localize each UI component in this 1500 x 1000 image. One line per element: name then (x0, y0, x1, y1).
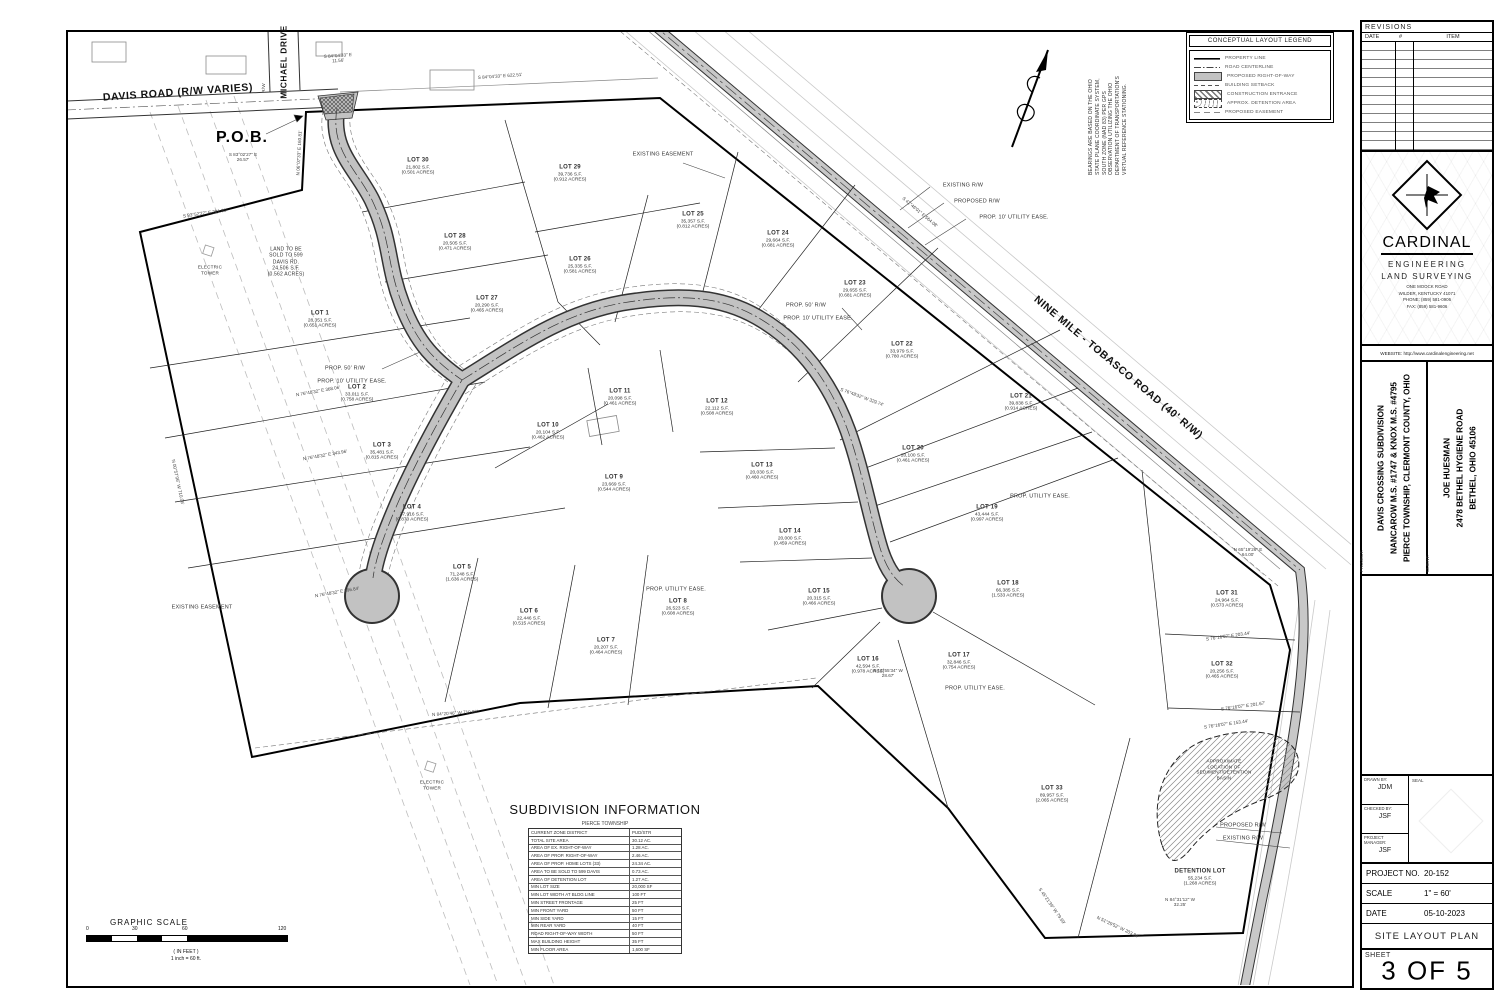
scale-value: 1" = 60' (1424, 889, 1451, 898)
table-row-value: 1,600 SF (630, 947, 650, 952)
lot-number: LOT 15 (803, 588, 836, 596)
table-row-value: 1.27 AC. (630, 877, 649, 882)
firm-line1: ENGINEERING (1362, 260, 1492, 269)
lot-acreage: (0.780 ACRES) (886, 355, 919, 361)
project-number-value: 20-152 (1424, 869, 1449, 878)
lot-number: LOT 21 (1005, 393, 1038, 401)
firm-address-line: ONE MOOCK ROAD (1362, 284, 1492, 291)
lot-acreage: (0.471 ACRES) (439, 247, 472, 253)
lot-label: LOT 5 71,248 S.F. (1.636 ACRES) (446, 564, 479, 583)
table-row-value: 30.12 AC. (630, 838, 651, 843)
scale-tick: 60 (182, 926, 188, 932)
legend-item: ROAD CENTERLINE (1194, 63, 1326, 72)
lot-number: LOT 8 (662, 598, 695, 606)
map-annotation: LAND TO BE SOLD TO 599 DAVIS RD. 24,506 … (268, 246, 305, 277)
table-row: MIN SIDE YARD 15 FT (529, 915, 681, 923)
credits-column: DRAWN BY: JDM CHECKED BY: JSF PROJECT MA… (1362, 776, 1409, 862)
revisions-block: REVISIONS DATE # ITEM (1362, 22, 1492, 152)
table-row-label: ROAD RIGHT-OF-WAY WIDTH (529, 930, 630, 937)
project-label: PROJECT: (1359, 550, 1364, 572)
lot-number: LOT 4 (396, 504, 429, 512)
map-annotation: EXISTING R/W (1223, 836, 1263, 843)
lot-label: LOT 28 20,505 S.F. (0.471 ACRES) (439, 233, 472, 252)
map-annotation: EXISTING R/W (943, 183, 983, 190)
scale-label: SCALE (1362, 889, 1424, 898)
lot-acreage: (1.636 ACRES) (446, 578, 479, 584)
township-header: PIERCE TOWNSHIP (505, 821, 705, 827)
lot-number: LOT 23 (839, 280, 872, 288)
table-row: MIN FLOOR AREA 1,600 SF (529, 946, 681, 953)
electric-corridor-lines (150, 96, 554, 985)
lot-number: LOT 18 (992, 580, 1025, 588)
lot-label: LOT 26 25,335 S.F. (0.581 ACRES) (564, 256, 597, 275)
lot-acreage: (0.997 ACRES) (971, 518, 1004, 524)
firm-address-line: WILDER, KENTUCKY 41071 (1362, 291, 1492, 298)
lot-label: LOT 22 33,979 S.F. (0.780 ACRES) (886, 341, 919, 360)
project-number-label: PROJECT NO. (1362, 869, 1424, 878)
lot-label: LOT 12 22,112 S.F. (0.508 ACRES) (701, 398, 734, 417)
lot-acreage: (0.464 ACRES) (590, 651, 623, 657)
lot-acreage: (0.465 ACRES) (1206, 675, 1239, 681)
subdivision-info-table: CURRENT ZONE DISTRICT PUD/STR TOTAL SITE… (528, 828, 682, 954)
sheet-number: 3 OF 5 (1381, 955, 1472, 986)
table-row-value: 25 FT (630, 900, 643, 905)
map-annotation: PROP. UTILITY EASE. (1010, 494, 1070, 501)
table-row-label: MIN REAR YARD (529, 923, 630, 930)
legend-swatch (1194, 64, 1220, 72)
lot-acreage: (0.758 ACRES) (341, 398, 374, 404)
bearing-label: S 84°04'33" E 11.56' (324, 52, 353, 64)
map-annotation: PROP. 50' R/W (786, 303, 826, 310)
lot-acreage: (0.460 ACRES) (746, 476, 779, 482)
drawn-by-value: JDM (1364, 784, 1406, 791)
project-location: PIERCE TOWNSHIP, CLERMONT COUNTY, OHIO (1401, 365, 1414, 571)
table-row: MIN LOT WIDTH AT BLDG LINE 100 FT (529, 891, 681, 899)
lot-label: LOT 6 22,446 S.F. (0.515 ACRES) (513, 608, 546, 627)
date-row: DATE 05-10-2023 (1362, 904, 1492, 924)
table-row-label: MIN FLOOR AREA (529, 946, 630, 953)
checked-by-cell: CHECKED BY: JSF (1362, 805, 1408, 834)
scale-bar (86, 935, 288, 942)
legend-item: APPROX. DETENTION AREA (1194, 99, 1326, 108)
lot-label: LOT 7 20,207 S.F. (0.464 ACRES) (590, 637, 623, 656)
bearing-label: N 84°31'12" W 32.25' (1165, 897, 1195, 907)
plan-sheet: LOT 1 28,351 S.F. (0.651 ACRES) LOT 2 33… (0, 0, 1500, 1000)
lot-number: LOT 20 (897, 445, 930, 453)
legend-swatch (1194, 72, 1222, 81)
table-row: CURRENT ZONE DISTRICT PUD/STR (529, 829, 681, 837)
revisions-item-col: ITEM (1417, 34, 1489, 40)
map-annotation: PROP. 10' UTILITY EASE. (317, 379, 386, 386)
lot-number: LOT 9 (598, 474, 631, 482)
project-manager-label: PROJECT MANAGER: (1364, 835, 1406, 845)
table-row-label: MIN SIDE YARD (529, 915, 630, 922)
map-annotation: ELECTRIC TOWER (420, 779, 444, 790)
lot-label: LOT 10 20,104 S.F. (0.462 ACRES) (532, 422, 565, 441)
table-row: MIN STREET FRONTAGE 25 FT (529, 899, 681, 907)
firm-block: CARDINAL ENGINEERING LAND SURVEYING ONE … (1362, 152, 1492, 346)
table-row-value: 1.28 AC. (630, 845, 649, 850)
table-row-value: 50 FT (630, 931, 643, 936)
date-label: DATE (1362, 909, 1424, 918)
map-annotation: ELECTRIC TOWER (198, 264, 222, 275)
lot-label: LOT 24 29,664 S.F. (0.681 ACRES) (762, 230, 795, 249)
table-row-value: 0.73 AC. (630, 869, 649, 874)
lot-number: DETENTION LOT (1175, 868, 1226, 876)
lot-number: LOT 14 (774, 528, 807, 536)
lot-label: LOT 29 39,736 S.F. (0.912 ACRES) (554, 164, 587, 183)
legend-item-label: PROPERTY LINE (1225, 56, 1266, 61)
lot-label: LOT 20 20,100 S.F. (0.461 ACRES) (897, 445, 930, 464)
lot-acreage: (0.459 ACRES) (774, 542, 807, 548)
table-row: AREA OF DETENTION LOT 1.27 AC. (529, 876, 681, 884)
lot-label: LOT 13 20,030 S.F. (0.460 ACRES) (746, 462, 779, 481)
lot-label: LOT 18 66,385 S.F. (1.533 ACRES) (992, 580, 1025, 599)
table-row-label: MIN LOT SIZE (529, 884, 630, 891)
lot-number: LOT 25 (677, 211, 710, 219)
lot-acreage: (0.508 ACRES) (701, 412, 734, 418)
legend: CONCEPTUAL LAYOUT LEGEND PROPERTY LINE R… (1186, 32, 1334, 123)
drawn-by-label: DRAWN BY: (1364, 777, 1406, 782)
lot-acreage: (0.515 ACRES) (513, 622, 546, 628)
lot-number: LOT 24 (762, 230, 795, 238)
legend-item-label: CONSTRUCTION ENTRANCE (1227, 92, 1298, 97)
lot-number: LOT 16 (852, 656, 885, 664)
lot-label: LOT 15 20,315 S.F. (0.466 ACRES) (803, 588, 836, 607)
lot-number: LOT 33 (1036, 785, 1069, 793)
lot-acreage: (0.681 ACRES) (839, 294, 872, 300)
drawn-by-cell: DRAWN BY: JDM (1362, 776, 1408, 805)
lot-number: LOT 5 (446, 564, 479, 572)
title-block: REVISIONS DATE # ITEM CARDINAL ENGINEERI… (1360, 20, 1494, 990)
lot-number: LOT 7 (590, 637, 623, 645)
legend-swatch (1194, 90, 1222, 99)
lot-acreage: (0.681 ACRES) (762, 244, 795, 250)
lot-acreage: (0.461 ACRES) (897, 459, 930, 465)
lot-label: LOT 2 33,011 S.F. (0.758 ACRES) (341, 384, 374, 403)
lot-number: LOT 10 (532, 422, 565, 430)
revisions-header: DATE # ITEM (1362, 33, 1492, 42)
table-row-label: CURRENT ZONE DISTRICT (529, 829, 630, 836)
table-row-label: AREA OF EX. RIGHT-OF-WAY (529, 845, 630, 852)
scale-tick: 0 (86, 926, 89, 932)
table-row-label: TOTAL SITE AREA (529, 837, 630, 844)
client-address: 2478 BETHEL HYGIENE ROAD (1453, 365, 1466, 571)
table-row: MIN FRONT YARD 50 FT (529, 907, 681, 915)
lot-number: LOT 17 (943, 652, 976, 660)
lot-acreage: (0.573 ACRES) (1211, 604, 1244, 610)
lot-acreage: (0.501 ACRES) (402, 171, 435, 177)
bearing-label: S 83°02'27" E 26.57' (229, 152, 257, 162)
lot-label: DETENTION LOT 55,234 S.F. (1.268 ACRES) (1175, 868, 1226, 887)
client-label: CLIENT: (1425, 555, 1430, 572)
lot-label: LOT 4 37,916 S.F. (0.870 ACRES) (396, 504, 429, 523)
map-annotation: PROP. 10' UTILITY EASE. (783, 316, 852, 323)
lot-label: LOT 11 20,098 S.F. (0.461 ACRES) (604, 388, 637, 407)
table-row-value: 15 FT (630, 916, 643, 921)
revisions-number-col: # (1399, 34, 1417, 40)
scale-ticks: 0 30 60 120 (86, 942, 286, 949)
lot-number: LOT 6 (513, 608, 546, 616)
table-row-label: AREA OF DETENTION LOT (529, 876, 630, 883)
table-row-value: 2.46 AC. (630, 853, 649, 858)
client-cell: CLIENT: JOE HUESMAN 2478 BETHEL HYGIENE … (1428, 362, 1492, 574)
lot-acreage: (1.268 ACRES) (1175, 882, 1226, 888)
project-number-row: PROJECT NO. 20-152 (1362, 864, 1492, 884)
lot-number: LOT 27 (471, 295, 504, 303)
map-annotation: PROPOSED R/W (1220, 823, 1266, 830)
lot-label: LOT 14 20,000 S.F. (0.459 ACRES) (774, 528, 807, 547)
lot-acreage: (0.754 ACRES) (943, 666, 976, 672)
map-annotation: PROP. UTILITY EASE. (646, 587, 706, 594)
firm-name: CARDINAL (1381, 234, 1474, 255)
subdivision-information: SUBDIVISION INFORMATION PIERCE TOWNSHIP … (505, 802, 705, 954)
table-row-value: PUD/STR (630, 830, 651, 835)
table-row-label: AREA TO BE SOLD TO 599 DAVIS (529, 868, 630, 875)
lot-acreage: (0.815 ACRES) (366, 456, 399, 462)
lot-acreage: (0.912 ACRES) (554, 178, 587, 184)
legend-item-label: PROPOSED RIGHT-OF-WAY (1227, 74, 1295, 79)
lot-label: LOT 33 89,957 S.F. (2.065 ACRES) (1036, 785, 1069, 804)
lot-number: LOT 32 (1206, 661, 1239, 669)
lot-number: LOT 3 (366, 442, 399, 450)
bearing-label: N 65°19'26" E 64.00' (1234, 547, 1263, 557)
revisions-date-col: DATE (1365, 34, 1399, 40)
legend-item: PROPERTY LINE (1194, 54, 1326, 63)
project-name: DAVIS CROSSING SUBDIVISION (1374, 365, 1387, 571)
legend-item: BUILDING SETBACK (1194, 81, 1326, 90)
lot-acreage: (0.812 ACRES) (677, 225, 710, 231)
revisions-empty-rows (1362, 42, 1492, 150)
seal-label: SEAL (1412, 778, 1424, 783)
legend-item-label: ROAD CENTERLINE (1225, 65, 1274, 70)
project-surveys: NANCAROW M.S. #1747 & KNOX M.S. #4795 (1387, 365, 1400, 571)
legend-item-label: APPROX. DETENTION AREA (1227, 101, 1296, 106)
lot-number: LOT 19 (971, 504, 1004, 512)
table-row-value: 35 FT (630, 939, 643, 944)
checked-by-value: JSF (1364, 813, 1406, 820)
legend-item-label: PROPOSED EASEMENT (1225, 110, 1283, 115)
map-annotation: PROP. 50' R/W (325, 366, 365, 373)
lot-label: LOT 8 26,523 S.F. (0.608 ACRES) (662, 598, 695, 617)
lot-number: LOT 26 (564, 256, 597, 264)
lot-number: LOT 1 (304, 310, 337, 318)
lot-label: LOT 1 28,351 S.F. (0.651 ACRES) (304, 310, 337, 329)
map-annotation: APPROXIMATE LOCATION OF SEDIMENT/DETENTI… (1196, 759, 1251, 782)
map-annotation: MICHAEL DRIVE (279, 25, 290, 98)
coordinate-system-note: BEARINGS ARE BASED ON THE OHIO STATE PLA… (1088, 25, 1129, 175)
map-annotation: EXISTING EASEMENT (633, 152, 694, 159)
lot-label: LOT 30 21,802 S.F. (0.501 ACRES) (402, 157, 435, 176)
scale-unit: ( IN FEET ) (86, 949, 286, 956)
checked-by-label: CHECKED BY: (1364, 806, 1406, 811)
legend-title: CONCEPTUAL LAYOUT LEGEND (1189, 35, 1331, 47)
lot-label: LOT 31 24,964 S.F. (0.573 ACRES) (1211, 590, 1244, 609)
map-annotation: PROP. 10' UTILITY EASE. (979, 215, 1048, 222)
lot-acreage: (0.544 ACRES) (598, 488, 631, 494)
client-city: BETHEL, OHIO 45106 (1467, 365, 1480, 571)
scale-row: SCALE 1" = 60' (1362, 884, 1492, 904)
seal-box: SEAL (1409, 776, 1492, 862)
notes-empty-box (1362, 576, 1492, 776)
graphic-scale: GRAPHIC SCALE 0 30 60 120 ( IN FEET ) 1 … (86, 918, 306, 963)
legend-item-label: BUILDING SETBACK (1225, 83, 1275, 88)
table-row: MIN LOT SIZE 20,000 SF (529, 884, 681, 892)
table-row: TOTAL SITE AREA 30.12 AC. (529, 837, 681, 845)
property-boundary (140, 98, 1290, 938)
legend-swatch (1194, 55, 1220, 63)
lot-acreage: (1.533 ACRES) (992, 594, 1025, 600)
lot-number: LOT 12 (701, 398, 734, 406)
site-plan-map (0, 0, 1500, 1000)
lot-acreage: (0.461 ACRES) (604, 402, 637, 408)
firm-line2: LAND SURVEYING (1362, 272, 1492, 281)
lot-label: LOT 25 35,357 S.F. (0.812 ACRES) (677, 211, 710, 230)
seal-watermark (1418, 788, 1483, 853)
lot-label: LOT 3 35,481 S.F. (0.815 ACRES) (366, 442, 399, 461)
lot-label: LOT 23 29,655 S.F. (0.681 ACRES) (839, 280, 872, 299)
lot-acreage: (0.870 ACRES) (396, 518, 429, 524)
lot-number: LOT 22 (886, 341, 919, 349)
firm-website: WEBSITE: http://www.cardinalengineering.… (1362, 346, 1492, 362)
lot-acreage: (0.608 ACRES) (662, 612, 695, 618)
map-annotation: PROPOSED R/W (954, 199, 1000, 206)
table-row-label: MIN STREET FRONTAGE (529, 899, 630, 906)
lot-label: LOT 19 43,444 S.F. (0.997 ACRES) (971, 504, 1004, 523)
lot-number: LOT 31 (1211, 590, 1244, 598)
lot-number: LOT 13 (746, 462, 779, 470)
table-row: MIN REAR YARD 40 FT (529, 923, 681, 931)
table-row: MAX BUILDING HEIGHT 35 FT (529, 938, 681, 946)
lot-number: LOT 29 (554, 164, 587, 172)
date-value: 05-10-2023 (1424, 909, 1465, 918)
table-row-value: 40 FT (630, 923, 643, 928)
lot-label: LOT 17 32,846 S.F. (0.754 ACRES) (943, 652, 976, 671)
lot-number: LOT 11 (604, 388, 637, 396)
project-manager-cell: PROJECT MANAGER: JSF (1362, 834, 1408, 862)
table-row-label: MIN LOT WIDTH AT BLDG LINE (529, 891, 630, 898)
lot-acreage: (0.651 ACRES) (304, 324, 337, 330)
lot-lines (150, 120, 1300, 938)
table-row: ROAD RIGHT-OF-WAY WIDTH 50 FT (529, 930, 681, 938)
bearing-label: S 12°55'34" W 28.67' (873, 668, 903, 678)
scale-tick: 120 (278, 926, 286, 932)
lot-number: LOT 30 (402, 157, 435, 165)
cardinal-logo-icon (1392, 160, 1463, 231)
project-manager-value: JSF (1364, 847, 1406, 854)
lot-acreage: (0.466 ACRES) (803, 602, 836, 608)
revisions-title: REVISIONS (1362, 22, 1492, 33)
table-row: AREA OF PROP. HOME LOTS (33) 24.34 AC. (529, 860, 681, 868)
table-row-label: MIN FRONT YARD (529, 907, 630, 914)
table-row: AREA OF EX. RIGHT-OF-WAY 1.28 AC. (529, 845, 681, 853)
lot-label: LOT 21 39,838 S.F. (0.914 ACRES) (1005, 393, 1038, 412)
legend-item: PROPOSED RIGHT-OF-WAY (1194, 72, 1326, 81)
map-annotation: P.O.B. (216, 128, 268, 148)
project-text: DAVIS CROSSING SUBDIVISION NANCAROW M.S.… (1374, 365, 1413, 571)
table-row-label: AREA OF PROP. RIGHT-OF-WAY (529, 852, 630, 859)
table-row-label: MAX BUILDING HEIGHT (529, 938, 630, 945)
table-row-value: 50 FT (630, 908, 643, 913)
map-annotation: R/W (261, 83, 267, 93)
firm-address: ONE MOOCK ROAD WILDER, KENTUCKY 41071 PH… (1362, 284, 1492, 310)
legend-swatch (1194, 82, 1220, 90)
subdivision-info-title: SUBDIVISION INFORMATION (505, 802, 705, 817)
legend-swatch (1194, 109, 1220, 117)
client-name: JOE HUESMAN (1440, 365, 1453, 571)
legend-swatch (1194, 99, 1222, 108)
map-annotation: EXISTING EASEMENT (172, 605, 233, 612)
lot-number: LOT 28 (439, 233, 472, 241)
table-row-value: 100 FT (630, 892, 646, 897)
firm-phone: PHONE: (859) 581-0906 (1362, 297, 1492, 304)
lot-acreage: (2.065 ACRES) (1036, 799, 1069, 805)
legend-item: CONSTRUCTION ENTRANCE (1194, 90, 1326, 99)
lot-label: LOT 32 20,256 S.F. (0.465 ACRES) (1206, 661, 1239, 680)
table-row-value: 24.34 AC. (630, 861, 651, 866)
lot-acreage: (0.465 ACRES) (471, 309, 504, 315)
table-row: AREA TO BE SOLD TO 599 DAVIS 0.73 AC. (529, 868, 681, 876)
scale-tick: 30 (132, 926, 138, 932)
table-row-label: AREA OF PROP. HOME LOTS (33) (529, 860, 630, 867)
graphic-scale-title: GRAPHIC SCALE (110, 918, 306, 927)
project-client-block: PROJECT: DAVIS CROSSING SUBDIVISION NANC… (1362, 362, 1492, 576)
lot-acreage: (0.914 ACRES) (1005, 407, 1038, 413)
sheet-box: SHEET 3 OF 5 (1362, 950, 1492, 988)
north-arrow-icon (1012, 50, 1048, 147)
credits-block: DRAWN BY: JDM CHECKED BY: JSF PROJECT MA… (1362, 776, 1492, 864)
legend-item: PROPOSED EASEMENT (1194, 108, 1326, 117)
firm-fax: FAX: (859) 581-9606 (1362, 304, 1492, 311)
lot-label: LOT 27 20,290 S.F. (0.465 ACRES) (471, 295, 504, 314)
client-text: JOE HUESMAN 2478 BETHEL HYGIENE ROAD BET… (1440, 365, 1479, 571)
table-row-value: 20,000 SF (630, 884, 652, 889)
legend-body: PROPERTY LINE ROAD CENTERLINE PROPOSED R… (1189, 50, 1331, 120)
lot-acreage: (0.462 ACRES) (532, 436, 565, 442)
scale-ratio: 1 inch = 60 ft. (86, 956, 286, 963)
lot-label: LOT 9 23,669 S.F. (0.544 ACRES) (598, 474, 631, 493)
project-cell: PROJECT: DAVIS CROSSING SUBDIVISION NANC… (1362, 362, 1428, 574)
plan-title: SITE LAYOUT PLAN (1362, 924, 1492, 950)
map-annotation: PROP. UTILITY EASE. (945, 686, 1005, 693)
table-row: AREA OF PROP. RIGHT-OF-WAY 2.46 AC. (529, 852, 681, 860)
lot-acreage: (0.581 ACRES) (564, 270, 597, 276)
